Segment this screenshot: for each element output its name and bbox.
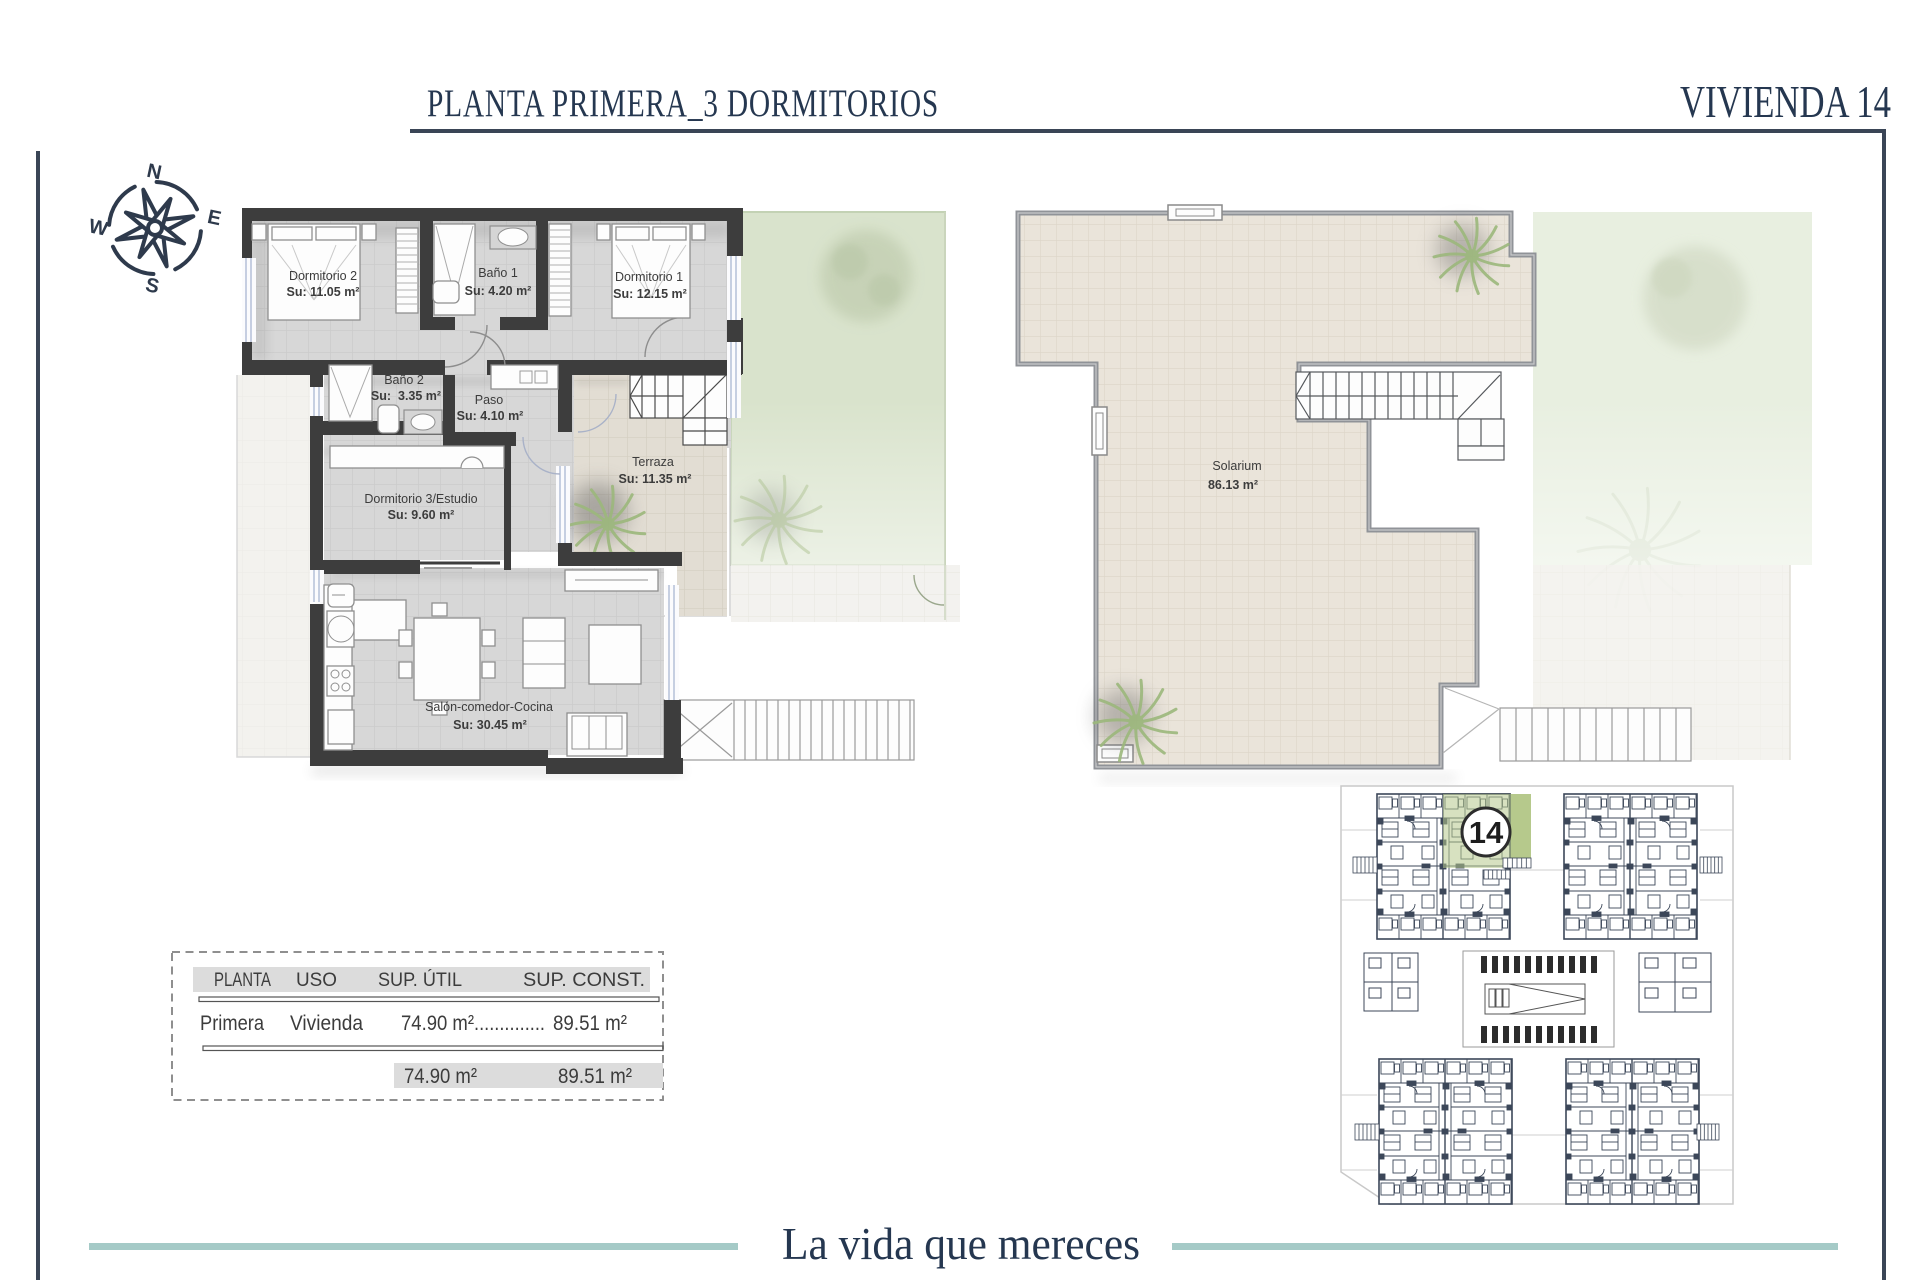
svg-text:Vivienda: Vivienda: [290, 1012, 363, 1035]
svg-text:VIVIENDA 14: VIVIENDA 14: [1680, 76, 1891, 127]
svg-text:89.51 m²: 89.51 m²: [553, 1012, 627, 1035]
svg-text:E: E: [205, 206, 223, 230]
svg-text:74.90 m²: 74.90 m²: [404, 1065, 477, 1088]
svg-text:Dormitorio 1: Dormitorio 1: [615, 270, 683, 284]
svg-text:Terraza: Terraza: [632, 455, 674, 469]
svg-text:Baño 2: Baño 2: [384, 373, 424, 387]
svg-text:Dormitorio 3/Estudio: Dormitorio 3/Estudio: [364, 492, 477, 506]
svg-text:Su: 30.45 m²: Su: 30.45 m²: [453, 718, 527, 732]
svg-text:SUP. ÚTIL: SUP. ÚTIL: [378, 969, 462, 991]
svg-text:La vida que mereces: La vida que mereces: [782, 1218, 1140, 1269]
svg-text:Paso: Paso: [475, 393, 504, 407]
svg-text:USO: USO: [296, 970, 337, 991]
svg-text:Solarium: Solarium: [1212, 459, 1261, 473]
svg-text:W: W: [87, 215, 110, 240]
svg-text:..............: ..............: [474, 1012, 545, 1035]
svg-text:Su: 12.15 m²: Su: 12.15 m²: [613, 287, 687, 301]
svg-text:Su: 11.05 m²: Su: 11.05 m²: [287, 285, 360, 299]
svg-text:S: S: [143, 274, 161, 298]
svg-text:14: 14: [1469, 815, 1504, 850]
svg-text:74.90 m²: 74.90 m²: [401, 1012, 474, 1035]
svg-text:Su: 3.35 m²: Su: 3.35 m²: [371, 389, 441, 403]
svg-text:Salón-comedor-Cocina: Salón-comedor-Cocina: [425, 700, 553, 714]
svg-text:Su: 11.35 m²: Su: 11.35 m²: [619, 472, 692, 486]
svg-text:Dormitorio 2: Dormitorio 2: [289, 269, 357, 283]
svg-text:86.13 m²: 86.13 m²: [1208, 478, 1258, 492]
svg-text:Su: 4.20 m²: Su: 4.20 m²: [465, 284, 532, 298]
svg-text:89.51 m²: 89.51 m²: [558, 1065, 632, 1088]
svg-text:Baño 1: Baño 1: [478, 266, 518, 280]
svg-text:PLANTA PRIMERA_3 DORMITORIOS: PLANTA PRIMERA_3 DORMITORIOS: [427, 82, 939, 125]
svg-text:Primera: Primera: [200, 1012, 264, 1035]
svg-text:Su: 4.10 m²: Su: 4.10 m²: [457, 409, 524, 423]
svg-text:PLANTA: PLANTA: [214, 970, 271, 991]
svg-text:Su: 9.60 m²: Su: 9.60 m²: [388, 508, 455, 522]
svg-text:SUP. CONST.: SUP. CONST.: [523, 970, 645, 991]
